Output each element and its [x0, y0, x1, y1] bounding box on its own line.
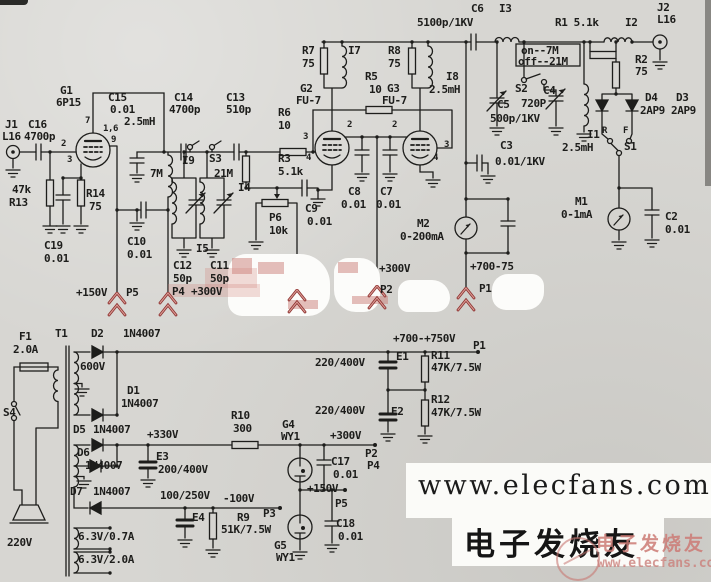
label-p2: P2 — [380, 284, 392, 296]
label-r9: R9 — [237, 512, 249, 524]
label-2.5mh: 2.5mH — [124, 116, 155, 128]
label-off--21m: off--21M — [518, 56, 568, 68]
label-r: R — [602, 127, 607, 136]
label-p5: P5 — [126, 287, 138, 299]
label-1n4007: 1N4007 — [85, 460, 122, 472]
label-1-6: 1,6 — [103, 125, 118, 134]
label-+150v: +150V — [307, 483, 338, 495]
label-c12: C12 — [173, 260, 192, 272]
label-c11: C11 — [210, 260, 229, 272]
label-5.1k: 5.1k — [278, 166, 303, 178]
label-75: 75 — [302, 58, 314, 70]
label-2ap9: 2AP9 — [671, 105, 696, 117]
label-r8: R8 — [388, 45, 400, 57]
label-75: 75 — [89, 201, 101, 213]
label-r6: R6 — [278, 107, 290, 119]
label-m1: M1 — [575, 196, 587, 208]
label-wy1: WY1 — [281, 431, 300, 443]
label-0.01: 0.01 — [341, 199, 366, 211]
label-5100p-1kv: 5100p/1KV — [417, 17, 473, 29]
label-0.01: 0.01 — [333, 469, 358, 481]
label-c4: C4 — [543, 85, 555, 97]
label-r11: R11 — [431, 350, 450, 362]
label-d1: D1 — [127, 385, 139, 397]
label-c3: C3 — [500, 140, 512, 152]
label-p2: P2 — [365, 448, 377, 460]
label-p3: P3 — [263, 508, 275, 520]
label-fu-7: FU-7 — [296, 95, 321, 107]
label-0.01: 0.01 — [376, 199, 401, 211]
label-s4: S4 — [3, 407, 15, 419]
label-s1: S1 — [624, 141, 636, 153]
label-1n4007: 1N4007 — [93, 424, 130, 436]
label-wy1: WY1 — [276, 552, 295, 564]
label-9: 9 — [111, 136, 116, 145]
label-r10: R10 — [231, 410, 250, 422]
label-7: 7 — [85, 117, 90, 126]
label-2.5mh: 2.5mH — [429, 84, 460, 96]
watermark-site: www.elecfans.com — [418, 470, 711, 501]
label-c15: C15 — [108, 92, 127, 104]
label-e4: E4 — [192, 512, 204, 524]
label-300: 300 — [233, 423, 252, 435]
label-2ap9: 2AP9 — [640, 105, 665, 117]
label-3: 3 — [303, 133, 308, 142]
label-500p-1kv: 500p/1KV — [490, 113, 540, 125]
label-10k: 10k — [269, 225, 288, 237]
label-1n4007: 1N4007 — [93, 486, 130, 498]
label-2: 2 — [61, 140, 66, 149]
label-s2: S2 — [515, 83, 527, 95]
label-d3: D3 — [676, 92, 688, 104]
scanned-schematic-page: J1L16C164700pG16P15C150.012.5mH47kR13R14… — [0, 0, 711, 582]
label-4700p: 4700p — [24, 131, 55, 143]
label-510p: 510p — [226, 104, 251, 116]
label-10: 10 — [369, 84, 381, 96]
label-0.01-1kv: 0.01/1KV — [495, 156, 545, 168]
label-p5: P5 — [335, 498, 347, 510]
label-g5: G5 — [274, 540, 286, 552]
label-c14: C14 — [174, 92, 193, 104]
label-0-200ma: 0-200mA — [400, 231, 444, 243]
label-c17: C17 — [331, 456, 350, 468]
label-6.3v-2.0a: 6.3V/2.0A — [78, 554, 134, 566]
label-2: 2 — [392, 121, 397, 130]
label-r5: R5 — [365, 71, 377, 83]
label-p4: P4 — [367, 460, 379, 472]
label-+150v: +150V — [76, 287, 107, 299]
label-75: 75 — [635, 66, 647, 78]
label-47k-7.5w: 47K/7.5W — [431, 362, 481, 374]
label-75: 75 — [388, 58, 400, 70]
label-f1: F1 — [19, 331, 31, 343]
label-p6: P6 — [269, 212, 281, 224]
label-f: F — [623, 127, 628, 136]
label-c13: C13 — [226, 92, 245, 104]
label-+330v: +330V — [147, 429, 178, 441]
label-l16: L16 — [2, 131, 21, 143]
label-200-400v: 200/400V — [158, 464, 208, 476]
label-r14: R14 — [86, 188, 105, 200]
label-c16: C16 — [28, 119, 47, 131]
label-220-400v: 220/400V — [315, 357, 365, 369]
label--100v: -100V — [223, 493, 254, 505]
label-r7: R7 — [302, 45, 314, 57]
label-3: 3 — [67, 156, 72, 165]
label-2: 2 — [347, 121, 352, 130]
label-c2: C2 — [665, 211, 677, 223]
label-r1-5.1k: R1 5.1k — [555, 17, 599, 29]
label-r2: R2 — [635, 54, 647, 66]
label-fu-7: FU-7 — [382, 95, 407, 107]
label-100-250v: 100/250V — [160, 490, 210, 502]
label-47k: 47k — [12, 184, 31, 196]
label-50p: 50p — [173, 273, 192, 285]
label-r12: R12 — [431, 394, 450, 406]
label-7m: 7M — [150, 168, 162, 180]
label-c19: C19 — [44, 240, 63, 252]
label-c6: C6 — [471, 3, 483, 15]
label-1n4007: 1N4007 — [123, 328, 160, 340]
scan-smudge — [705, 0, 711, 186]
label-21m: 21M — [214, 168, 233, 180]
elecfans-logo-icon — [556, 537, 600, 581]
label-4700p: 4700p — [169, 104, 200, 116]
watermark-red-brand: 电子发烧友 — [596, 529, 706, 556]
label-10: 10 — [278, 120, 290, 132]
label-0.01: 0.01 — [307, 216, 332, 228]
label-c8: C8 — [348, 186, 360, 198]
label-r13: R13 — [9, 197, 28, 209]
label-+300v: +300V — [330, 430, 361, 442]
label-r3: R3 — [278, 153, 290, 165]
label-d4: D4 — [645, 92, 657, 104]
label-0.01: 0.01 — [127, 249, 152, 261]
scan-smudge — [0, 0, 28, 5]
label-0.01: 0.01 — [338, 531, 363, 543]
label-g4: G4 — [282, 419, 294, 431]
label-6p15: 6P15 — [56, 97, 81, 109]
label-p4: P4 — [172, 286, 184, 298]
label-2.5mh: 2.5mH — [562, 142, 593, 154]
label-+300v: +300V — [379, 263, 410, 275]
label-220-400v: 220/400V — [315, 405, 365, 417]
label-0.01: 0.01 — [110, 104, 135, 116]
label-6.3v-0.7a: 6.3V/0.7A — [78, 531, 134, 543]
label-i9: I9 — [182, 155, 194, 167]
label-47k-7.5w: 47K/7.5W — [431, 407, 481, 419]
label-g1: G1 — [60, 85, 72, 97]
label-2.0a: 2.0A — [13, 344, 38, 356]
label-c7: C7 — [380, 186, 392, 198]
label-4: 4 — [306, 154, 311, 163]
label-s3: S3 — [209, 153, 221, 165]
label-g2: G2 — [300, 83, 312, 95]
label-220v: 220V — [7, 537, 32, 549]
label-0.01: 0.01 — [44, 253, 69, 265]
label-d6: D6 — [77, 447, 89, 459]
label-g3: G3 — [387, 83, 399, 95]
label-c9: C9 — [305, 203, 317, 215]
label-3: 3 — [444, 141, 449, 150]
label-d7: D7 — [70, 486, 82, 498]
label-50p: 50p — [210, 273, 229, 285]
label-d5: D5 — [73, 424, 85, 436]
label-i4: I4 — [238, 182, 250, 194]
label-4: 4 — [433, 154, 438, 163]
label-e3: E3 — [156, 451, 168, 463]
label-+300v: +300V — [191, 286, 222, 298]
label-i3: I3 — [499, 3, 511, 15]
label-c10: C10 — [127, 236, 146, 248]
label-j1: J1 — [5, 119, 17, 131]
label-c18: C18 — [336, 518, 355, 530]
label-i1: I1 — [587, 129, 599, 141]
label-i7: I7 — [348, 45, 360, 57]
label-i5: I5 — [196, 243, 208, 255]
label-i8: I8 — [446, 71, 458, 83]
label-+700-+750v: +700-+750V — [393, 333, 455, 345]
label-51k-7.5w: 51K/7.5W — [221, 524, 271, 536]
label-j2: J2 — [657, 2, 669, 14]
label-e1: E1 — [396, 351, 408, 363]
watermark-red-site: www.elecfans.com — [597, 556, 711, 571]
label-l16: L16 — [657, 14, 676, 26]
label-600v: 600V — [80, 361, 105, 373]
label-p1: P1 — [479, 283, 491, 295]
label-m2: M2 — [417, 218, 429, 230]
label-i2: I2 — [625, 17, 637, 29]
label-720p: 720P — [521, 98, 546, 110]
label-d2: D2 — [91, 328, 103, 340]
label-t1: T1 — [55, 328, 67, 340]
label-c5: C5 — [497, 99, 509, 111]
label-0.01: 0.01 — [665, 224, 690, 236]
label-e2: E2 — [391, 406, 403, 418]
label-p1: P1 — [473, 340, 485, 352]
label-+700-75: +700-75 — [470, 261, 514, 273]
label-1n4007: 1N4007 — [121, 398, 158, 410]
label-0-1ma: 0-1mA — [561, 209, 592, 221]
